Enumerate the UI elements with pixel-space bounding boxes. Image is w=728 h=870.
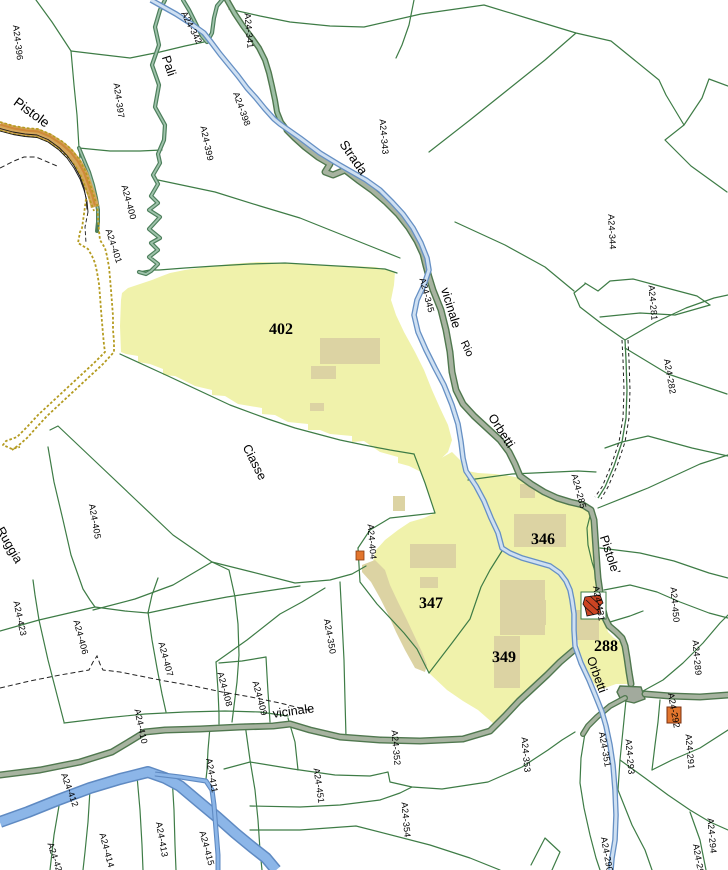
svg-text:A24-344: A24-344 <box>606 214 618 250</box>
svg-text:349: 349 <box>492 649 516 666</box>
svg-text:346: 346 <box>531 531 555 548</box>
svg-text:347: 347 <box>419 595 443 612</box>
svg-text:402: 402 <box>269 321 293 338</box>
svg-text:288: 288 <box>594 638 618 655</box>
